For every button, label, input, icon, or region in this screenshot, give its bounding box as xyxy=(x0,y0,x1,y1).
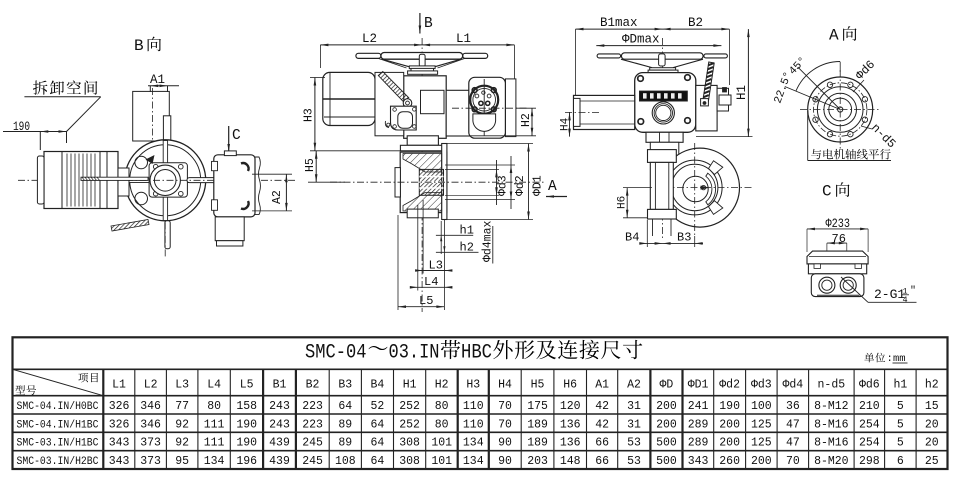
svg-text:346: 346 xyxy=(140,400,161,413)
svg-text:B4: B4 xyxy=(625,231,639,245)
svg-text:260: 260 xyxy=(719,455,740,468)
svg-text:148: 148 xyxy=(560,455,581,468)
svg-text:L4: L4 xyxy=(207,379,221,392)
svg-text:L2: L2 xyxy=(144,379,158,392)
svg-text:134: 134 xyxy=(463,437,484,450)
svg-text:B1: B1 xyxy=(273,379,287,392)
svg-text:189: 189 xyxy=(527,418,548,431)
svg-text:B2: B2 xyxy=(306,379,320,392)
svg-text:15: 15 xyxy=(925,400,939,413)
svg-text:H4: H4 xyxy=(560,117,572,131)
svg-text:200: 200 xyxy=(656,418,677,431)
svg-text:53: 53 xyxy=(627,437,641,450)
svg-text:SMC-04.IN/H1BC: SMC-04.IN/H1BC xyxy=(17,419,99,431)
svg-text:243: 243 xyxy=(269,400,290,413)
svg-text:298: 298 xyxy=(859,455,880,468)
svg-text:89: 89 xyxy=(338,418,352,431)
svg-text:110: 110 xyxy=(463,418,484,431)
svg-text:101: 101 xyxy=(431,455,452,468)
svg-text:289: 289 xyxy=(688,437,709,450)
svg-text:80: 80 xyxy=(207,400,221,413)
svg-text:ΦDmax: ΦDmax xyxy=(622,33,660,47)
svg-text:L5: L5 xyxy=(419,294,433,308)
svg-text:53: 53 xyxy=(627,455,641,468)
svg-text:343: 343 xyxy=(688,455,709,468)
svg-text:5: 5 xyxy=(897,437,904,450)
svg-text:B3: B3 xyxy=(338,379,352,392)
svg-text:190: 190 xyxy=(236,437,257,450)
svg-text:136: 136 xyxy=(560,418,581,431)
svg-text:66: 66 xyxy=(595,455,609,468)
svg-text:254: 254 xyxy=(859,418,880,431)
svg-text:343: 343 xyxy=(109,455,130,468)
svg-text:200: 200 xyxy=(656,400,677,413)
svg-text:134: 134 xyxy=(204,455,225,468)
svg-text:20: 20 xyxy=(925,418,939,431)
svg-text:31: 31 xyxy=(627,400,641,413)
svg-text:64: 64 xyxy=(371,418,385,431)
svg-text:H4: H4 xyxy=(498,379,512,392)
svg-text:SMC-03.IN/H2BC: SMC-03.IN/H2BC xyxy=(17,456,99,468)
svg-text:136: 136 xyxy=(560,437,581,450)
svg-text:Φd3: Φd3 xyxy=(751,379,772,392)
svg-text:111: 111 xyxy=(204,418,225,431)
svg-text:241: 241 xyxy=(688,400,709,413)
svg-text:8-M16: 8-M16 xyxy=(814,418,849,431)
svg-text:8-M20: 8-M20 xyxy=(814,455,849,468)
svg-text:42: 42 xyxy=(595,400,609,413)
svg-text:H1: H1 xyxy=(735,85,749,100)
svg-text:200: 200 xyxy=(719,437,740,450)
svg-text:210: 210 xyxy=(859,400,880,413)
svg-text:200: 200 xyxy=(751,455,772,468)
svg-text:500: 500 xyxy=(656,455,677,468)
svg-text:Φd3: Φd3 xyxy=(497,175,510,196)
svg-text:196: 196 xyxy=(236,455,257,468)
svg-text:77: 77 xyxy=(175,400,189,413)
svg-text:SMC-04: SMC-04 xyxy=(305,342,367,365)
svg-text:90: 90 xyxy=(498,455,512,468)
svg-text:H5: H5 xyxy=(304,158,317,172)
svg-text:H2: H2 xyxy=(435,379,449,392)
svg-text:C: C xyxy=(822,183,832,201)
svg-text:90: 90 xyxy=(498,437,512,450)
svg-text:92: 92 xyxy=(175,418,189,431)
svg-text:100: 100 xyxy=(751,400,772,413)
svg-text:Φd4: Φd4 xyxy=(782,379,803,392)
svg-text:110: 110 xyxy=(463,400,484,413)
svg-text:175: 175 xyxy=(527,400,548,413)
svg-text:108: 108 xyxy=(335,455,356,468)
svg-text:5: 5 xyxy=(897,400,904,413)
svg-text:42: 42 xyxy=(595,418,609,431)
svg-text:70: 70 xyxy=(786,455,800,468)
svg-text:H1: H1 xyxy=(403,379,417,392)
svg-text:52: 52 xyxy=(371,400,385,413)
svg-text:Φd2: Φd2 xyxy=(514,175,527,196)
svg-text:70: 70 xyxy=(498,418,512,431)
svg-text:326: 326 xyxy=(109,418,130,431)
svg-text:A1: A1 xyxy=(595,379,609,392)
svg-text:308: 308 xyxy=(399,437,420,450)
svg-text:5: 5 xyxy=(897,418,904,431)
svg-text:64: 64 xyxy=(338,400,352,413)
svg-text:158: 158 xyxy=(236,400,257,413)
svg-text:25: 25 xyxy=(925,455,939,468)
svg-text:8-M12: 8-M12 xyxy=(814,400,849,413)
svg-text:120: 120 xyxy=(560,400,581,413)
svg-text:H3: H3 xyxy=(466,379,480,392)
svg-text:200: 200 xyxy=(719,418,740,431)
svg-text:H5: H5 xyxy=(531,379,545,392)
svg-text:h1: h1 xyxy=(893,379,907,392)
svg-text:B: B xyxy=(134,37,144,55)
svg-text:439: 439 xyxy=(269,455,290,468)
svg-text:245: 245 xyxy=(302,437,323,450)
svg-text:245: 245 xyxy=(302,455,323,468)
svg-text:111: 111 xyxy=(204,437,225,450)
svg-text:373: 373 xyxy=(140,455,161,468)
svg-text:C: C xyxy=(232,128,241,144)
svg-text:A2: A2 xyxy=(627,379,641,392)
svg-text:125: 125 xyxy=(751,418,772,431)
svg-text:95: 95 xyxy=(175,455,189,468)
svg-text:223: 223 xyxy=(302,418,323,431)
svg-text:125: 125 xyxy=(751,437,772,450)
svg-text:B1max: B1max xyxy=(600,16,638,30)
svg-text:326: 326 xyxy=(109,400,130,413)
svg-text:373: 373 xyxy=(140,437,161,450)
svg-text:64: 64 xyxy=(371,437,385,450)
svg-text:B: B xyxy=(424,16,433,32)
svg-text:L3: L3 xyxy=(175,379,189,392)
svg-text:101: 101 xyxy=(431,437,452,450)
svg-text:20: 20 xyxy=(925,437,939,450)
svg-text:92: 92 xyxy=(175,437,189,450)
svg-text:Φd2: Φd2 xyxy=(719,379,740,392)
svg-text:223: 223 xyxy=(302,400,323,413)
svg-text:6: 6 xyxy=(897,455,904,468)
svg-text:4: 4 xyxy=(903,295,908,305)
svg-text:252: 252 xyxy=(399,418,420,431)
svg-text:308: 308 xyxy=(399,455,420,468)
svg-text:″: ″ xyxy=(910,285,916,297)
svg-text:36: 36 xyxy=(786,400,800,413)
svg-text:Φd6: Φd6 xyxy=(859,379,880,392)
svg-text:n-d5: n-d5 xyxy=(818,379,846,392)
svg-text:L5: L5 xyxy=(240,379,254,392)
svg-text:89: 89 xyxy=(338,437,352,450)
svg-text:254: 254 xyxy=(859,437,880,450)
svg-text:ΦD1: ΦD1 xyxy=(532,175,545,196)
svg-text:70: 70 xyxy=(498,400,512,413)
svg-text:190: 190 xyxy=(719,400,740,413)
svg-text:243: 243 xyxy=(269,418,290,431)
svg-text:343: 343 xyxy=(109,437,130,450)
svg-text:B3: B3 xyxy=(677,231,691,245)
svg-text:439: 439 xyxy=(269,437,290,450)
svg-text:B2: B2 xyxy=(688,16,703,30)
svg-text:L1: L1 xyxy=(456,32,471,46)
svg-text:H3: H3 xyxy=(303,108,316,122)
svg-text:h2: h2 xyxy=(925,379,939,392)
svg-text:2-G1: 2-G1 xyxy=(874,287,905,302)
svg-text:500: 500 xyxy=(656,437,677,450)
svg-text:HBC: HBC xyxy=(461,342,492,365)
svg-text:346: 346 xyxy=(140,418,161,431)
svg-text:190: 190 xyxy=(236,418,257,431)
svg-text:66: 66 xyxy=(595,437,609,450)
svg-text:ΦD: ΦD xyxy=(660,379,674,392)
svg-text:134: 134 xyxy=(463,455,484,468)
svg-text:ΦD1: ΦD1 xyxy=(688,379,709,392)
svg-text:L1: L1 xyxy=(112,379,126,392)
svg-text:H6: H6 xyxy=(617,196,629,209)
svg-text:289: 289 xyxy=(688,418,709,431)
svg-text:B4: B4 xyxy=(371,379,385,392)
svg-text:H6: H6 xyxy=(563,379,577,392)
svg-text:03.IN: 03.IN xyxy=(389,342,440,365)
svg-text:A: A xyxy=(548,179,557,195)
svg-text:SMC-04.IN/H0BC: SMC-04.IN/H0BC xyxy=(17,401,99,413)
svg-text:SMC-03.IN/H1BC: SMC-03.IN/H1BC xyxy=(17,438,99,450)
svg-text:31: 31 xyxy=(627,418,641,431)
svg-text::: : xyxy=(887,353,893,365)
svg-text:64: 64 xyxy=(371,455,385,468)
svg-text:L2: L2 xyxy=(362,32,377,46)
svg-text:80: 80 xyxy=(435,400,449,413)
svg-text:203: 203 xyxy=(527,455,548,468)
svg-text:A: A xyxy=(829,27,839,45)
svg-text:8-M16: 8-M16 xyxy=(814,437,849,450)
svg-text:189: 189 xyxy=(527,437,548,450)
svg-text:A2: A2 xyxy=(271,190,284,204)
svg-text:47: 47 xyxy=(786,437,800,450)
svg-text:47: 47 xyxy=(786,418,800,431)
svg-text:252: 252 xyxy=(399,400,420,413)
svg-text:H2: H2 xyxy=(520,113,533,127)
svg-text:80: 80 xyxy=(435,418,449,431)
